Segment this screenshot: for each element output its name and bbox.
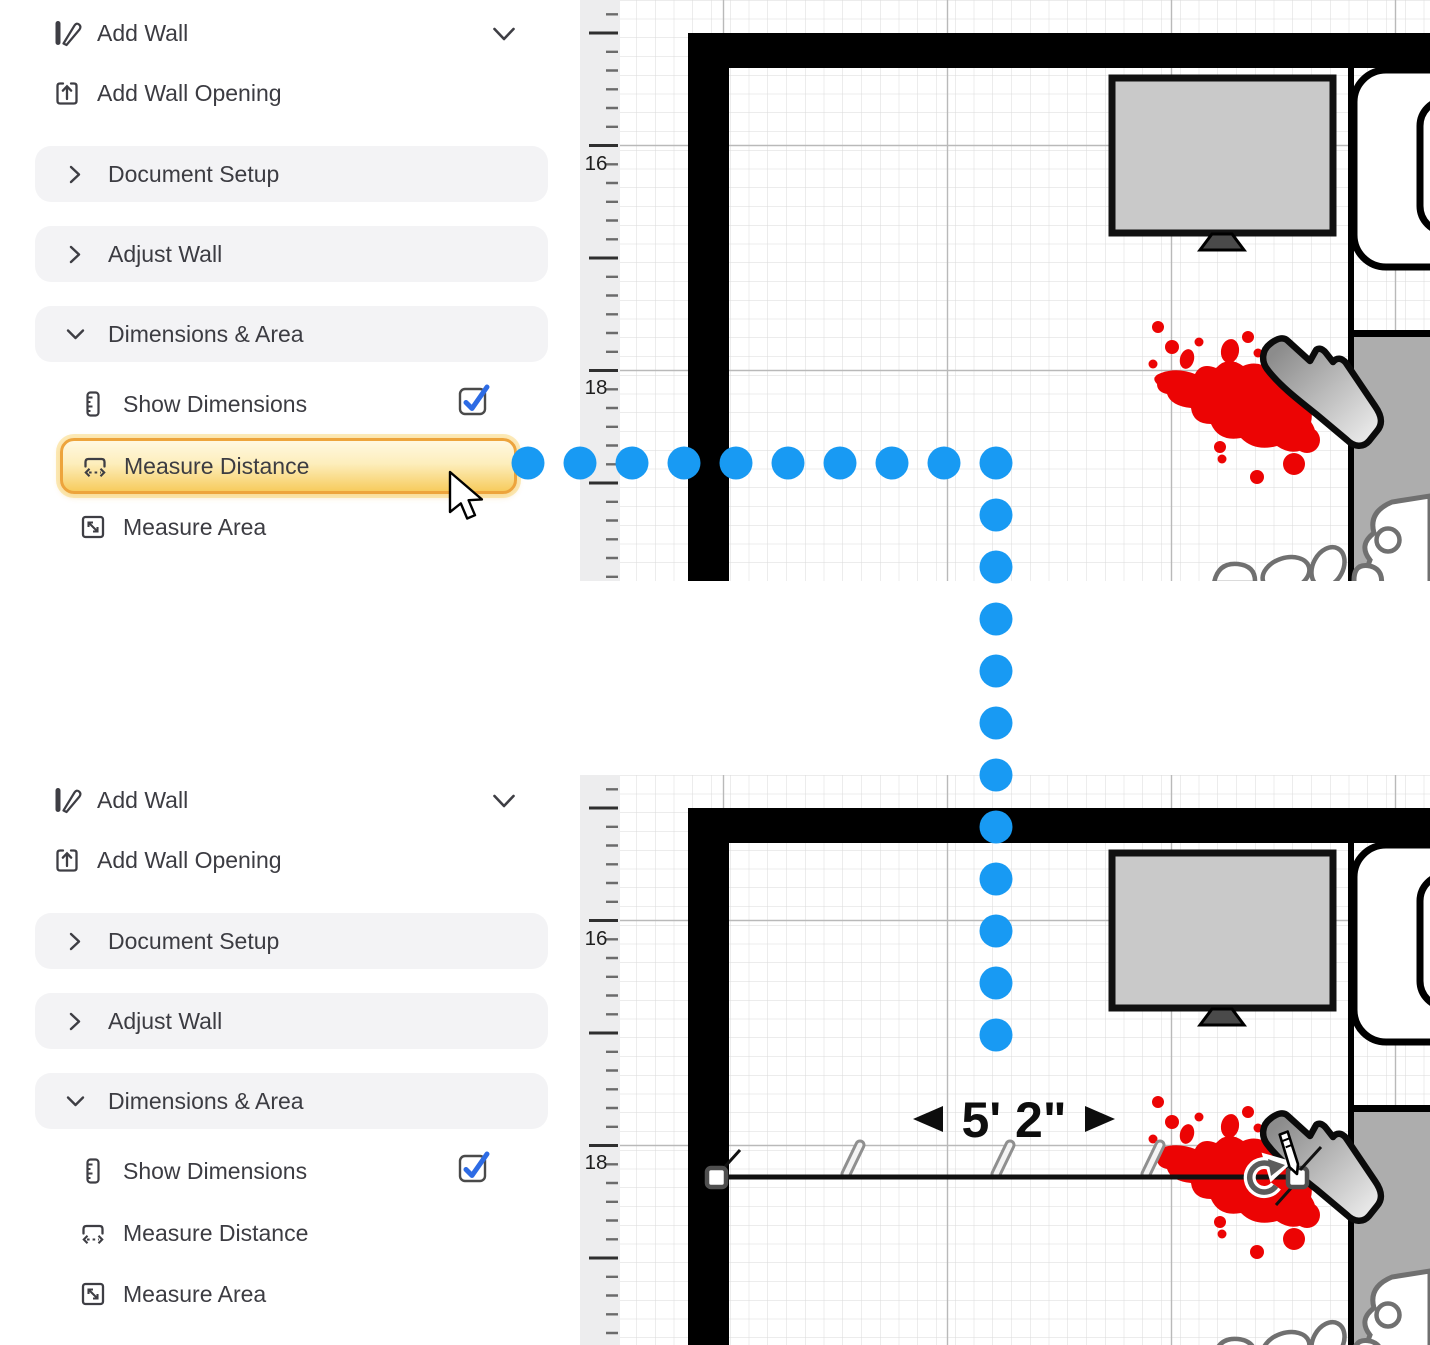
add-wall-tool[interactable]: Add Wall — [52, 777, 188, 823]
document-setup-section[interactable]: Document Setup — [35, 146, 548, 202]
measure-area-label: Measure Area — [123, 1281, 266, 1308]
chevron-down-icon[interactable] — [490, 23, 518, 47]
measure-distance-icon — [80, 451, 110, 481]
measure-distance-icon — [78, 1218, 108, 1248]
measure-distance-label: Measure Distance — [124, 453, 309, 480]
adjust-wall-section[interactable]: Adjust Wall — [35, 226, 548, 282]
show-dimensions-checkbox[interactable] — [457, 381, 493, 417]
document-setup-label: Document Setup — [108, 928, 279, 955]
chevron-right-icon — [63, 242, 87, 267]
measure-handle-left[interactable] — [707, 1168, 726, 1187]
add-wall-opening-label: Add Wall Opening — [97, 847, 282, 874]
add-wall-opening-icon — [52, 78, 82, 108]
chevron-down-icon — [63, 322, 87, 347]
add-wall-icon — [52, 18, 82, 48]
adjust-wall-section[interactable]: Adjust Wall — [35, 993, 548, 1049]
chevron-down-icon[interactable] — [490, 790, 518, 814]
measure-distance-button-active[interactable]: Measure Distance — [60, 438, 517, 494]
floorplan-canvas-bottom[interactable]: 5' 2" — [580, 775, 1430, 1345]
show-dimensions-checkbox[interactable] — [457, 1148, 493, 1184]
add-wall-tool[interactable]: Add Wall — [52, 10, 188, 56]
add-wall-opening-tool[interactable]: Add Wall Opening — [52, 837, 282, 883]
add-wall-opening-tool[interactable]: Add Wall Opening — [52, 70, 282, 116]
chevron-right-icon — [63, 1009, 87, 1034]
measure-distance-row[interactable]: Measure Distance — [78, 1210, 308, 1256]
ruler-icon — [78, 1156, 108, 1186]
show-dimensions-row[interactable]: Show Dimensions — [78, 1148, 307, 1194]
show-dimensions-label: Show Dimensions — [123, 391, 307, 418]
chevron-right-icon — [63, 929, 87, 954]
measure-area-label: Measure Area — [123, 514, 266, 541]
dimensions-area-section[interactable]: Dimensions & Area — [35, 1073, 548, 1129]
show-dimensions-row[interactable]: Show Dimensions — [78, 381, 307, 427]
add-wall-label: Add Wall — [97, 20, 188, 47]
add-wall-opening-icon — [52, 845, 82, 875]
measure-area-row[interactable]: Measure Area — [78, 1271, 266, 1317]
measure-distance-label: Measure Distance — [123, 1220, 308, 1247]
chevron-right-icon — [63, 162, 87, 187]
measure-area-row[interactable]: Measure Area — [78, 504, 266, 550]
measure-area-icon — [78, 512, 108, 542]
add-wall-icon — [52, 785, 82, 815]
measure-area-icon — [78, 1279, 108, 1309]
adjust-wall-label: Adjust Wall — [108, 241, 222, 268]
ruler-icon — [78, 389, 108, 419]
floorplan-canvas-top[interactable] — [580, 0, 1430, 581]
show-dimensions-label: Show Dimensions — [123, 1158, 307, 1185]
measurement-value: 5' 2" — [961, 1092, 1066, 1148]
document-setup-label: Document Setup — [108, 161, 279, 188]
document-setup-section[interactable]: Document Setup — [35, 913, 548, 969]
dimensions-area-section[interactable]: Dimensions & Area — [35, 306, 548, 362]
dimensions-area-label: Dimensions & Area — [108, 1088, 304, 1115]
dimensions-area-label: Dimensions & Area — [108, 321, 304, 348]
adjust-wall-label: Adjust Wall — [108, 1008, 222, 1035]
chevron-down-icon — [63, 1089, 87, 1114]
add-wall-label: Add Wall — [97, 787, 188, 814]
add-wall-opening-label: Add Wall Opening — [97, 80, 282, 107]
